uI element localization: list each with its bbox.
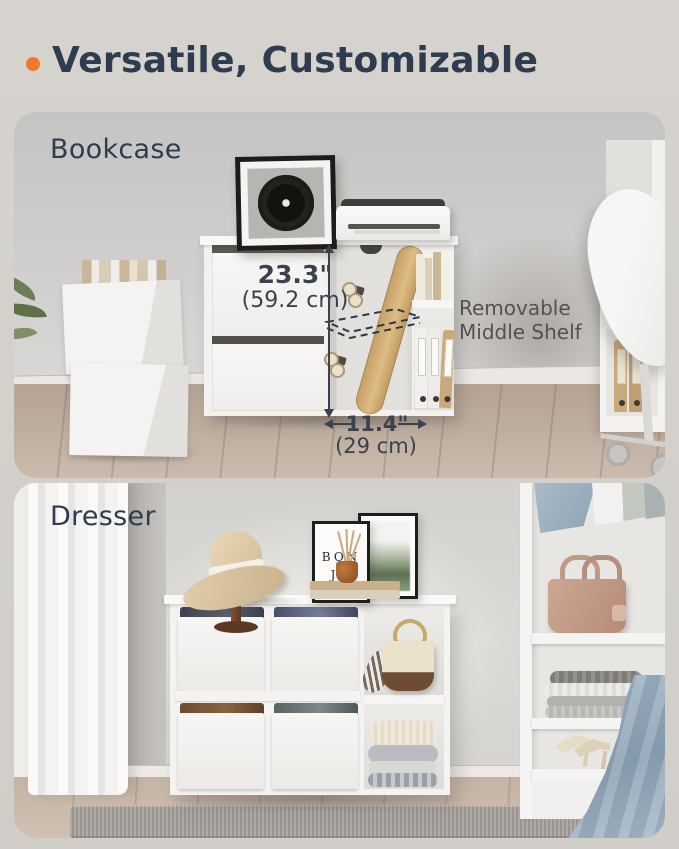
skateboard-wheel	[330, 363, 345, 378]
printer	[336, 206, 450, 240]
row-divider	[176, 691, 360, 701]
hanging-shirt	[622, 483, 648, 521]
dresser-panel: BON JO	[14, 483, 665, 838]
page-title: Versatile, Customizable	[52, 40, 538, 81]
shelf-slot	[212, 336, 324, 344]
books-in-cube	[416, 252, 450, 300]
height-dimension-inches: 23.3"	[210, 260, 380, 289]
stacked-books	[310, 581, 400, 590]
cabinet-door-bottom	[212, 344, 325, 411]
vinyl-record-frame	[235, 155, 337, 251]
fabric-drawer-bin	[178, 713, 264, 789]
hanging-shirt	[592, 483, 626, 525]
printer-paper-tray	[354, 230, 440, 234]
closet-shelf	[532, 633, 665, 644]
hat-stand-base	[214, 621, 258, 633]
height-dimension-cm: (59.2 cm)	[200, 288, 390, 313]
chair-caster	[606, 442, 630, 466]
bookcase-label: Bookcase	[50, 134, 182, 165]
folded-blanket	[368, 773, 438, 787]
storage-cube-bottom	[69, 363, 189, 457]
reed-diffuser-bottle	[336, 561, 358, 583]
printer-output-slot	[348, 224, 440, 229]
fabric-drawer-bin	[272, 617, 358, 691]
storage-cube-top	[62, 279, 184, 374]
closet-frame	[520, 483, 532, 819]
handbag-pouch-charm	[612, 605, 626, 621]
fabric-drawer-bin	[272, 713, 358, 789]
removable-shelf-note: Removable Middle Shelf	[459, 296, 582, 345]
width-dimension-cm: (29 cm)	[326, 434, 426, 458]
folded-knit	[370, 721, 436, 747]
product-marketing-image: Versatile, Customizable	[0, 0, 679, 849]
middle-shelf	[364, 695, 444, 704]
binder	[614, 340, 627, 412]
bookcase-panel: 23.3" (59.2 cm) 11.4" (29 cm) Removable …	[14, 112, 665, 478]
width-dimension-inches: 11.4"	[332, 412, 422, 436]
dresser-label: Dresser	[50, 501, 156, 532]
bullet-dot-icon	[26, 57, 40, 71]
binder	[428, 328, 440, 408]
hanging-shirt	[644, 483, 665, 519]
bucket-bag	[382, 641, 434, 691]
